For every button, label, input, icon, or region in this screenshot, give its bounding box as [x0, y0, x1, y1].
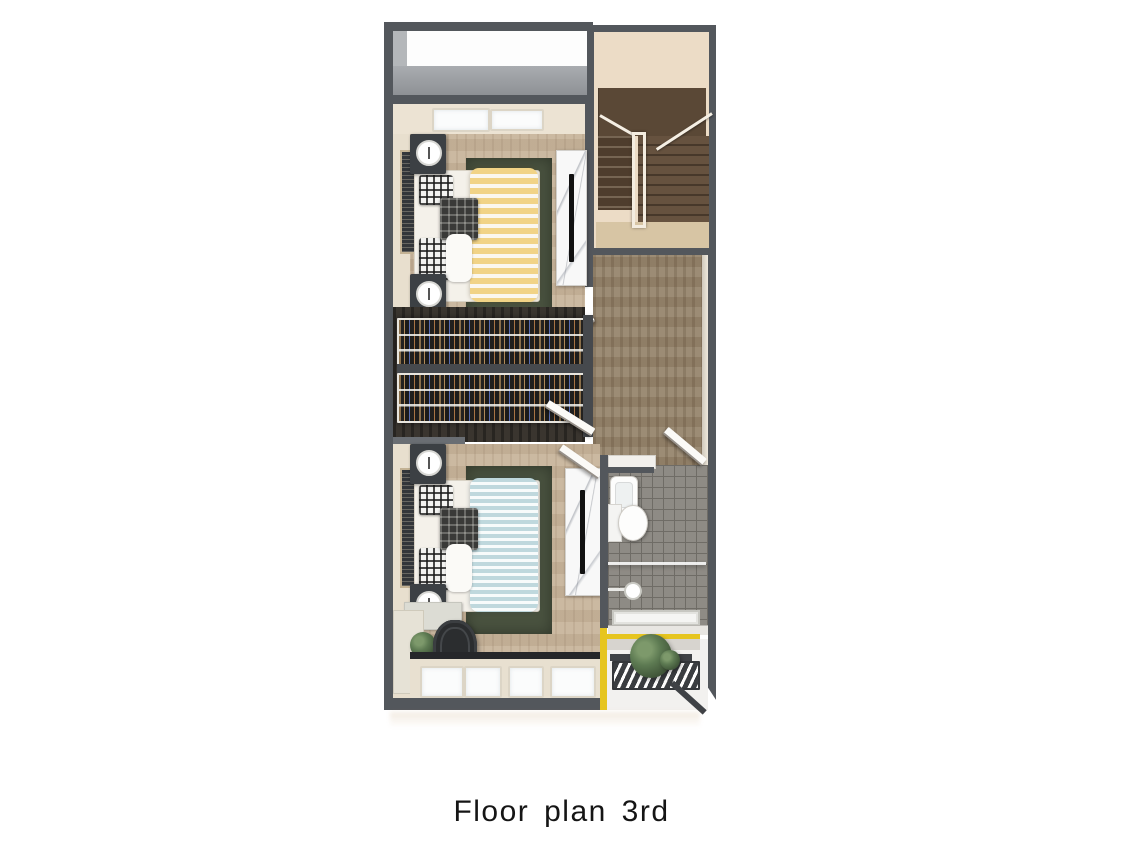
bathroom-north-wall-stub: [608, 467, 654, 473]
front-balcony-wall-face-bottom: [393, 66, 587, 95]
shower-head: [624, 582, 642, 600]
toilet-bowl: [618, 505, 648, 541]
window: [420, 666, 464, 698]
wall-left: [384, 26, 393, 710]
closet-divider: [397, 364, 583, 373]
bedroom-top-tv: [569, 174, 574, 262]
bathroom-west-wall: [600, 455, 608, 628]
balcony-plant-sprig: [660, 650, 680, 670]
bed-sheet-fold: [446, 234, 472, 282]
shower-drain: [612, 610, 700, 626]
ceiling-light-panel: [490, 109, 544, 131]
closet-east-post: [583, 315, 593, 437]
bedroom-bottom-floor-edge: [410, 652, 600, 659]
stairs-side-shelves: [598, 136, 634, 210]
bedroom-bottom-duvet: [470, 478, 538, 612]
shower-glass-partition: [608, 562, 706, 565]
wardrobe-rack-top: [397, 318, 587, 368]
clock: [416, 140, 442, 166]
bed-sheet-fold: [446, 544, 472, 592]
stairwell: [587, 25, 716, 255]
ceiling-light-panel: [432, 108, 490, 132]
wall-right-lower: [708, 248, 716, 628]
window: [508, 666, 544, 698]
window: [464, 666, 502, 698]
clock: [416, 281, 442, 307]
wall-top: [384, 22, 593, 31]
clock: [416, 450, 442, 476]
floor-reflection: [390, 712, 700, 728]
balcony-east-wall: [708, 622, 716, 704]
floor-plan: [384, 22, 716, 711]
bedroom-top-north-wall: [384, 95, 593, 104]
closet-south-wall-stub: [393, 437, 465, 444]
wall-bottom: [384, 698, 607, 710]
window: [550, 666, 596, 698]
stairs-lower-flight: [638, 136, 709, 222]
caption: Floor plan 3rd: [0, 795, 1123, 829]
stairs-railing-well: [632, 132, 646, 228]
bedroom-top-duvet: [470, 168, 538, 302]
hallway-floor: [593, 255, 708, 477]
bedroom-bottom-tv: [580, 490, 585, 574]
stairs-landing: [596, 222, 709, 248]
balcony-accent-left: [600, 628, 607, 710]
